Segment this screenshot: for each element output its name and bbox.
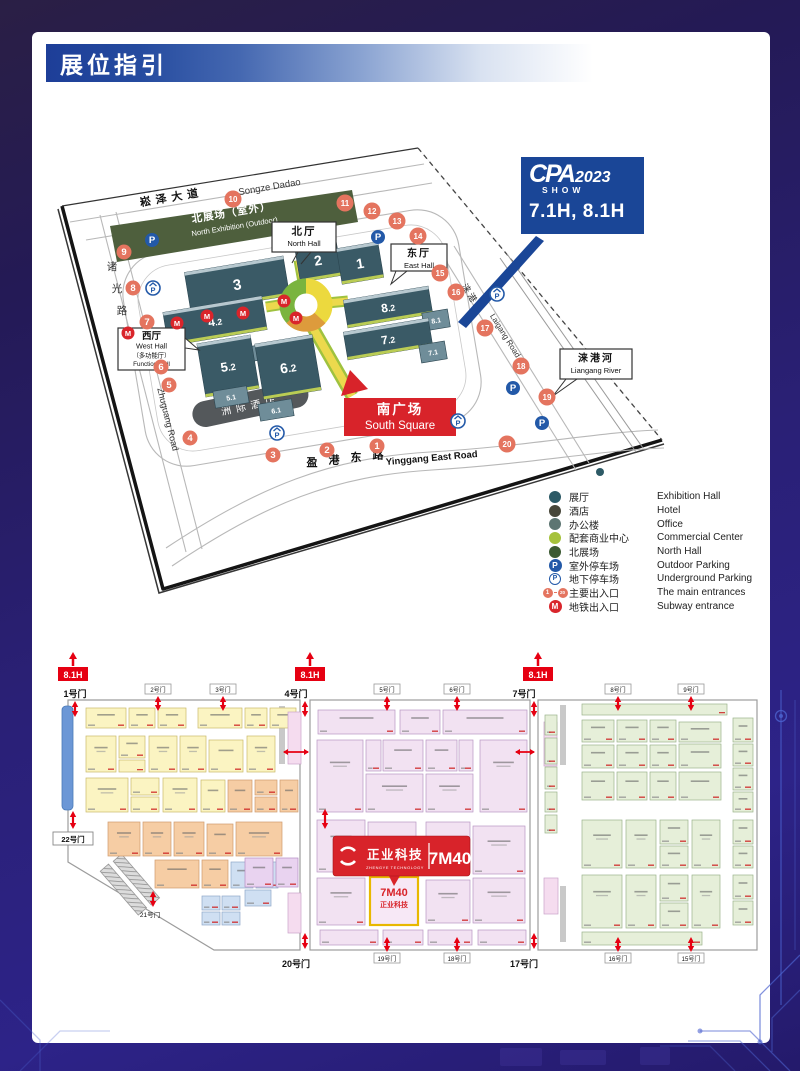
show-badge: CPA2023 SHOW 7.1H, 8.1H: [521, 157, 644, 234]
label: P: [150, 286, 155, 295]
legend-row: 办公楼Office: [547, 517, 752, 531]
callout-en: East Hall: [404, 261, 434, 270]
subway-icon: M: [290, 312, 303, 325]
circuit-line: [660, 1046, 735, 1071]
entrance-number: 20: [503, 440, 512, 449]
booth-block: [207, 824, 233, 856]
partition-wall: [560, 705, 566, 765]
hall-marker: 8.1H: [58, 652, 88, 681]
entrance-marker: 18: [513, 358, 530, 375]
gate-label: 15号门: [682, 955, 701, 963]
entrance-number: 5: [166, 380, 172, 391]
circuit-node: [698, 1029, 703, 1034]
gate-label: 8号门: [610, 686, 625, 694]
booth-block: [245, 858, 273, 887]
subway-icon: M: [171, 317, 184, 330]
outdoor-parking-icon: P: [371, 230, 385, 244]
banner-company-en: ZHENGYE TECHNOLOGY: [366, 865, 424, 870]
booth-block: [426, 740, 457, 771]
label: P: [494, 292, 499, 301]
entrance-number: 6: [158, 362, 163, 373]
label: P: [539, 418, 546, 429]
gate-label: 7号门: [512, 688, 535, 699]
gate-label: 16号门: [609, 955, 628, 963]
legend-label-en: Office: [657, 519, 683, 530]
road-label-zhuguang-cn: 诸: [107, 261, 118, 273]
booth-block: [228, 780, 252, 812]
gate-label: 5号门: [379, 686, 394, 694]
entrance-number: 9: [121, 247, 126, 258]
booth-block: [318, 710, 395, 734]
hall-marker: 8.1H: [523, 652, 553, 681]
booth-block: [626, 820, 656, 868]
gate-label: 3号门: [215, 686, 230, 694]
booth-block: [692, 820, 720, 868]
outdoor-parking-icon: P: [145, 233, 159, 247]
legend-row: 展厅Exhibition Hall: [547, 490, 752, 504]
booth-block: [733, 875, 753, 899]
watermark: [560, 1050, 606, 1065]
show-logo: CPA2023: [529, 162, 636, 187]
booth-block: [733, 820, 753, 844]
entrance-marker: 16: [448, 284, 465, 301]
entrance-number: 17: [481, 324, 490, 333]
booth-block: [288, 712, 301, 764]
gate-arrow: [302, 933, 308, 949]
booth-block: [280, 780, 298, 812]
subway-icon: M: [278, 295, 291, 308]
entrance-marker: 8: [126, 281, 141, 296]
booth-block: [180, 736, 206, 772]
entrance-marker: 13: [389, 213, 406, 230]
gate-label: 19号门: [378, 955, 397, 963]
gate-label: 21号门: [140, 910, 160, 919]
booth-block: [317, 740, 363, 812]
circuit-node: [758, 1040, 763, 1045]
booth-block: [626, 875, 656, 928]
booth-block: [660, 820, 688, 844]
entrance-marker: 9: [117, 245, 132, 260]
booth-block: [660, 903, 688, 928]
road-label-zhuguang-cn: 光: [112, 282, 123, 295]
road-label-yinggang-cn: 盈: [306, 456, 318, 469]
booth-block: [582, 820, 622, 868]
entrance-marker: 10: [225, 191, 242, 208]
booth-block: [650, 772, 676, 800]
entrance-marker: 4: [183, 431, 198, 446]
booth-block: [209, 740, 243, 772]
road-label-zhuguang-cn: 路: [117, 304, 128, 317]
entrance-marker: 6: [154, 360, 169, 375]
south-square-en: South Square: [365, 420, 435, 432]
floor-plan: 1号门2号门3号门4号门5号门6号门7号门8号门9号门22号门21号门20号门1…: [53, 652, 757, 969]
page-title-bar: 展位指引: [46, 44, 634, 82]
entrance-marker: 20: [499, 436, 516, 453]
legend-row: 酒店Hotel: [547, 504, 752, 518]
show-logo-year: 2023: [575, 169, 611, 186]
callout-en: West Hall: [136, 342, 167, 351]
entrance-range-icon: 120: [547, 588, 563, 598]
partition-wall: [560, 886, 566, 942]
watermark: [640, 1047, 670, 1065]
show-logo-brand: CPA: [529, 160, 574, 188]
entrance-number: 12: [368, 207, 377, 216]
tree-dot: [596, 468, 604, 476]
booth-block: [426, 880, 470, 923]
booth-block: [155, 860, 199, 888]
south-square-cn: 南广场: [377, 401, 424, 417]
legend-dot-icon: [547, 505, 563, 517]
label: M: [293, 314, 299, 323]
callout-cn: 涞港河: [578, 352, 614, 365]
booth-block: [443, 710, 527, 734]
booth-block: [247, 736, 275, 772]
subway-icon: M: [547, 600, 563, 613]
road-label-yinggang-cn: 东: [351, 450, 362, 464]
legend-row: 北展场North Hall: [547, 545, 752, 559]
watermark: [500, 1048, 542, 1066]
entrance-marker: 12: [364, 203, 381, 220]
legend-row: P室外停车场Outdoor Parking: [547, 558, 752, 572]
hall-marker-label: 8.1H: [300, 670, 319, 680]
circuit-line: [0, 1000, 40, 1071]
booth-block: [733, 901, 753, 925]
booth-block: [383, 740, 423, 771]
booth-block: [202, 912, 220, 925]
callout-sub-cn: （多功能厅）: [133, 351, 171, 360]
legend-dot-icon: [547, 518, 563, 530]
hall-block: 6.2: [255, 335, 321, 400]
booth-block: [366, 774, 423, 812]
legend-label-cn: 地铁出入口: [569, 599, 657, 614]
subway-icon: M: [122, 327, 135, 340]
gate-label: 2号门: [150, 686, 165, 694]
booth-block: [582, 704, 727, 715]
outdoor-parking-icon: P: [547, 559, 563, 572]
booth-block: [276, 858, 298, 887]
legend-dot-icon: [547, 532, 563, 544]
label: P: [149, 235, 156, 246]
booth-block: [86, 778, 128, 812]
booth-block: [400, 710, 440, 734]
banner-booth-number: 7M40: [429, 849, 472, 868]
label: M: [204, 312, 210, 321]
entrance-marker: 17: [477, 320, 494, 337]
legend-row: 120主要出入口The main entrances: [547, 586, 752, 600]
outdoor-parking-icon: P: [506, 381, 520, 395]
entrance-marker: 14: [410, 228, 427, 245]
gate-label: 1号门: [63, 688, 86, 699]
gate-label: 9号门: [683, 686, 698, 694]
label: P: [455, 419, 460, 428]
booth-block: [86, 736, 116, 772]
booth-block: [174, 822, 204, 856]
subway-icon: M: [237, 307, 250, 320]
booth-block: [201, 780, 225, 812]
gate-label: 20号门: [282, 958, 310, 969]
page-title: 展位指引: [46, 46, 168, 80]
entrance-number: 16: [452, 288, 461, 297]
underground-parking-icon: P: [547, 573, 563, 585]
entrance-number: 2: [324, 445, 329, 456]
entrance-number: 19: [543, 393, 552, 402]
legend-row: M地铁出入口Subway entrance: [547, 600, 752, 614]
legend-label-en: The main entrances: [657, 587, 745, 598]
callout-en: Liangang River: [571, 366, 622, 375]
entrance-marker: 11: [337, 195, 354, 212]
hall-block: 1: [336, 242, 383, 284]
booth-block: [236, 822, 282, 856]
entrance-marker: 1: [370, 439, 385, 454]
booth-block: [733, 718, 753, 742]
underground-parking-icon: P: [451, 414, 465, 428]
booth-block: [617, 772, 647, 800]
entrance-number: 14: [414, 232, 423, 241]
legend-row: 配套商业中心Commercial Center: [547, 531, 752, 545]
booth-block: [582, 772, 614, 800]
subway-icon: M: [201, 310, 214, 323]
callout-cn: 东厅: [407, 247, 431, 260]
label: P: [510, 383, 517, 394]
underground-parking-icon: P: [490, 287, 504, 301]
booth-block: [366, 740, 381, 771]
circuit-line: [700, 1031, 790, 1071]
label: M: [125, 329, 131, 338]
booth-block: [163, 778, 197, 812]
entrance-number: 1: [374, 441, 380, 452]
entrance-marker: 15: [432, 265, 449, 282]
booth-block: [692, 875, 720, 928]
booth-block: [108, 822, 140, 856]
legend-dot-icon: [547, 546, 563, 558]
circuit-line: [760, 955, 800, 1042]
booth-block: [288, 893, 301, 933]
legend-label-en: Outdoor Parking: [657, 560, 730, 571]
hall-block: 7.1: [419, 341, 448, 363]
booth-block: [317, 878, 365, 925]
callout-cn: 北厅: [292, 225, 317, 238]
circuit-node: [779, 714, 783, 718]
booth-block: [222, 912, 240, 925]
booth-block: [473, 826, 525, 874]
underground-parking-icon: P: [146, 281, 160, 295]
entrance-number: 3: [270, 450, 275, 461]
booth-block: [544, 878, 558, 914]
banner-company-cn: 正业科技: [367, 847, 423, 862]
hall-marker-label: 8.1H: [528, 670, 547, 680]
gate-arrow: [531, 701, 537, 717]
legend-label-en: Exhibition Hall: [657, 491, 720, 502]
callout-cn: 西厅: [142, 331, 162, 342]
booth-block: [202, 860, 228, 888]
booth-block: [426, 774, 473, 812]
legend-row: P地下停车场Underground Parking: [547, 572, 752, 586]
label: M: [281, 297, 287, 306]
map-legend: 展厅Exhibition Hall酒店Hotel办公楼Office配套商业中心C…: [547, 490, 752, 613]
entrance-marker: 2: [320, 443, 335, 458]
entrance-marker: 3: [266, 448, 281, 463]
show-halls-label: 7.1H, 8.1H: [529, 201, 636, 223]
gate-label: 18号门: [448, 955, 467, 963]
booth-block: [679, 744, 721, 768]
legend-label-en: North Hall: [657, 546, 701, 557]
label: M: [174, 319, 180, 328]
hall-marker: 8.1H: [295, 652, 325, 681]
booth-block: [679, 772, 721, 800]
gate-label: 17号门: [510, 958, 538, 969]
booth-block: [459, 740, 473, 771]
booth-block: [582, 932, 702, 945]
circuit-line: [772, 990, 800, 1052]
outdoor-parking-icon: P: [535, 416, 549, 430]
entrance-number: 18: [517, 362, 526, 371]
booth-block: [143, 822, 171, 856]
highlight-booth-number: 7M40: [380, 887, 408, 899]
highlight-booth-name: 正业科技: [380, 900, 409, 909]
gate-arrow: [302, 701, 308, 717]
registration-strip: [62, 706, 73, 810]
entrance-marker: 7: [140, 315, 155, 330]
gate-label: 4号门: [284, 688, 307, 699]
booth-block: [545, 738, 557, 764]
entrance-number: 4: [187, 433, 193, 444]
hall-marker-label: 8.1H: [63, 670, 82, 680]
legend-dot-icon: [547, 491, 563, 503]
booth-block: [582, 875, 622, 928]
booth-block: [473, 878, 525, 923]
gate-label: 6号门: [449, 686, 464, 694]
entrance-number: 8: [130, 283, 135, 294]
legend-label-en: Commercial Center: [657, 532, 743, 543]
label: M: [240, 309, 246, 318]
entrance-marker: 19: [539, 389, 556, 406]
underground-parking-icon: P: [270, 426, 284, 440]
callout-en: North Hall: [287, 239, 321, 248]
entrance-number: 7: [144, 317, 149, 328]
entrance-number: 13: [393, 217, 402, 226]
legend-label-en: Hotel: [657, 505, 680, 516]
entrance-number: 11: [341, 199, 350, 208]
booth-block: [660, 875, 688, 901]
entrance-number: 10: [229, 195, 238, 204]
entrance-number: 15: [436, 269, 445, 278]
label: P: [274, 431, 279, 440]
entrance-marker: 5: [162, 378, 177, 393]
legend-label-en: Subway entrance: [657, 601, 734, 612]
legend-label-en: Underground Parking: [657, 573, 752, 584]
gate-label: 22号门: [61, 834, 84, 844]
gate-arrow: [531, 933, 537, 949]
circuit-line: [20, 1031, 110, 1071]
label: P: [375, 232, 382, 243]
hall-block: 5.2: [197, 335, 259, 397]
booth-block: [149, 736, 177, 772]
